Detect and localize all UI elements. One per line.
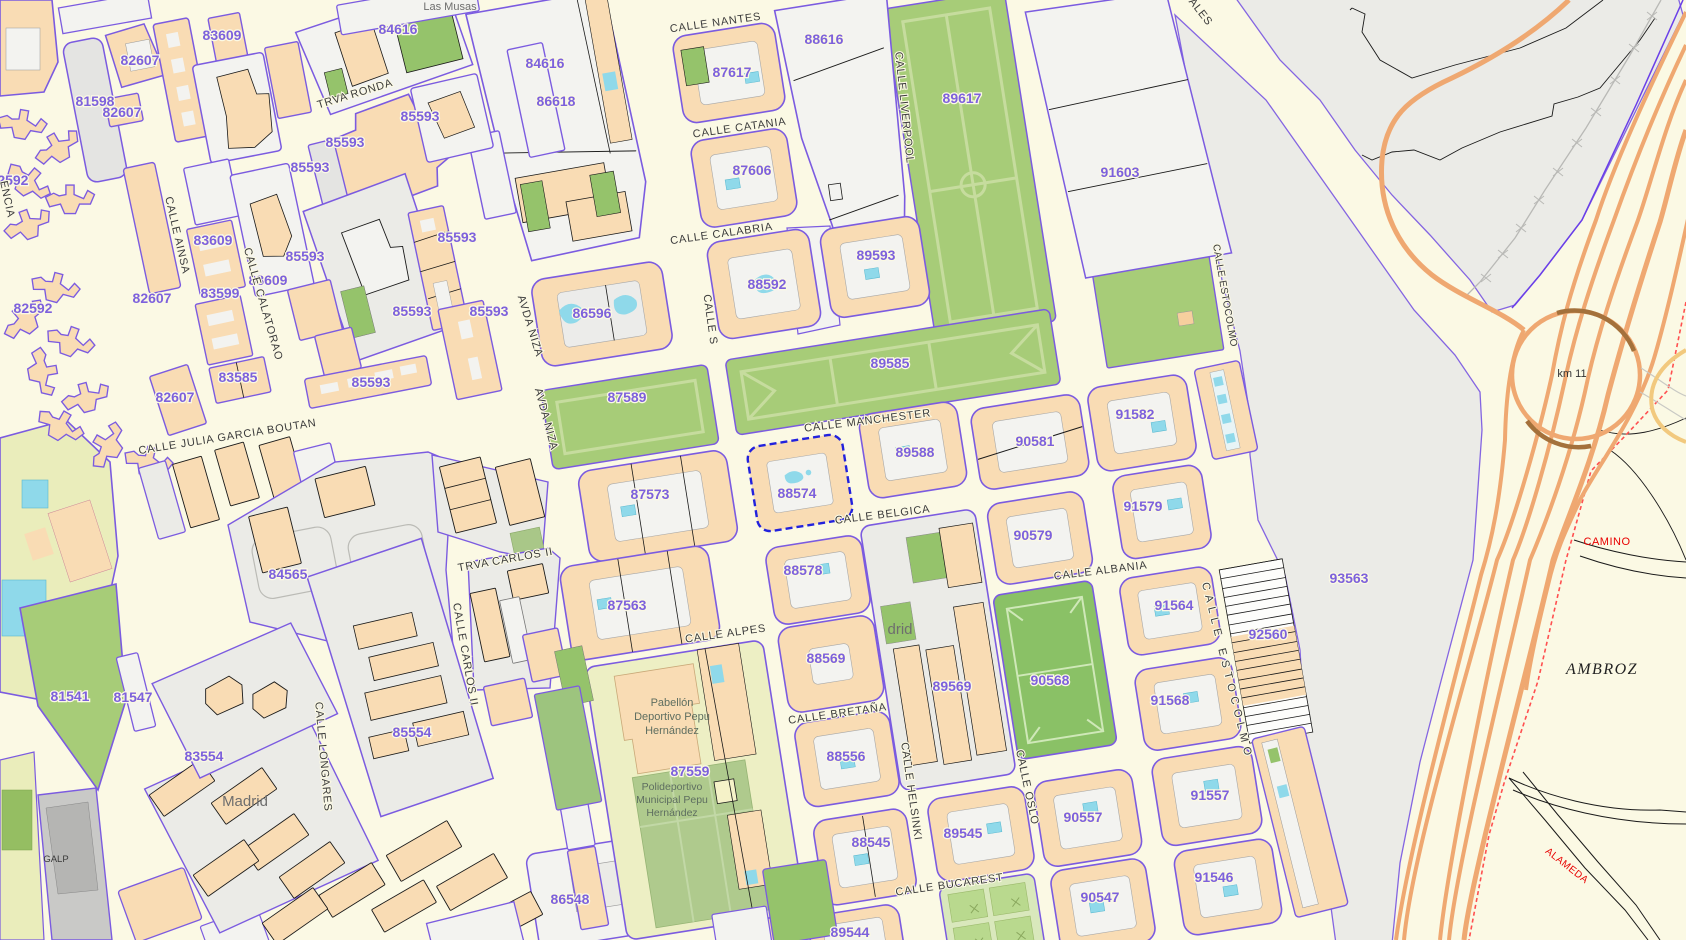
svg-text:90579: 90579: [1014, 527, 1053, 543]
svg-text:85593: 85593: [286, 248, 325, 264]
svg-text:88545: 88545: [852, 834, 891, 850]
svg-text:82592: 82592: [14, 300, 53, 316]
svg-text:Municipal Pepu: Municipal Pepu: [636, 794, 708, 806]
svg-text:Las Musas: Las Musas: [423, 1, 477, 13]
svg-text:88556: 88556: [827, 748, 866, 764]
svg-text:83609: 83609: [203, 27, 242, 43]
svg-text:87589: 87589: [608, 389, 647, 405]
svg-text:89588: 89588: [896, 444, 935, 460]
svg-text:90557: 90557: [1064, 809, 1103, 825]
svg-text:91603: 91603: [1101, 164, 1140, 180]
svg-text:88574: 88574: [778, 485, 817, 501]
svg-text:90581: 90581: [1016, 433, 1055, 449]
svg-text:82607: 82607: [103, 104, 142, 120]
svg-text:89585: 89585: [871, 355, 910, 371]
svg-text:87573: 87573: [631, 486, 670, 502]
svg-text:91557: 91557: [1191, 787, 1230, 803]
svg-text:CAMINO: CAMINO: [1584, 536, 1631, 548]
svg-text:drid: drid: [887, 621, 912, 638]
svg-text:81547: 81547: [114, 689, 153, 705]
svg-text:89545: 89545: [944, 825, 983, 841]
svg-text:87606: 87606: [733, 162, 772, 178]
svg-text:84616: 84616: [379, 21, 418, 37]
svg-text:87563: 87563: [608, 597, 647, 613]
svg-text:85593: 85593: [393, 303, 432, 319]
svg-text:88592: 88592: [748, 276, 787, 292]
svg-text:93563: 93563: [1330, 570, 1369, 586]
svg-text:85593: 85593: [401, 108, 440, 124]
svg-text:86596: 86596: [573, 305, 612, 321]
svg-text:91582: 91582: [1116, 406, 1155, 422]
svg-text:83585: 83585: [219, 369, 258, 385]
svg-text:91564: 91564: [1155, 597, 1194, 613]
svg-text:88616: 88616: [805, 31, 844, 47]
svg-text:85554: 85554: [393, 724, 432, 740]
svg-text:89617: 89617: [943, 90, 982, 106]
svg-text:Hernández: Hernández: [646, 807, 697, 819]
svg-text:83554: 83554: [185, 748, 224, 764]
svg-text:92560: 92560: [1249, 626, 1288, 642]
svg-text:84616: 84616: [526, 55, 565, 71]
svg-text:82607: 82607: [133, 290, 172, 306]
svg-text:84565: 84565: [269, 566, 308, 582]
svg-text:88578: 88578: [784, 562, 823, 578]
svg-text:87617: 87617: [713, 64, 752, 80]
svg-text:82607: 82607: [156, 389, 195, 405]
svg-text:86548: 86548: [551, 891, 590, 907]
svg-text:91546: 91546: [1195, 869, 1234, 885]
svg-text:90568: 90568: [1031, 672, 1070, 688]
svg-text:86618: 86618: [537, 93, 576, 109]
svg-text:Polideportivo: Polideportivo: [642, 781, 703, 793]
svg-text:85593: 85593: [352, 374, 391, 390]
svg-text:81541: 81541: [51, 688, 90, 704]
svg-text:85593: 85593: [438, 229, 477, 245]
svg-text:89593: 89593: [857, 247, 896, 263]
svg-text:Hernández: Hernández: [645, 725, 699, 737]
svg-text:82607: 82607: [121, 52, 160, 68]
svg-text:83609: 83609: [194, 232, 233, 248]
svg-text:88569: 88569: [807, 650, 846, 666]
svg-text:85593: 85593: [291, 159, 330, 175]
svg-text:91579: 91579: [1124, 498, 1163, 514]
svg-text:89569: 89569: [933, 678, 972, 694]
svg-text:91568: 91568: [1151, 692, 1190, 708]
svg-text:89544: 89544: [831, 924, 870, 940]
svg-text:km 11: km 11: [1557, 368, 1586, 380]
svg-text:Pabellón: Pabellón: [651, 697, 694, 709]
svg-text:85593: 85593: [470, 303, 509, 319]
svg-text:Deportivo Pepu: Deportivo Pepu: [634, 711, 710, 723]
svg-text:90547: 90547: [1081, 889, 1120, 905]
svg-text:85593: 85593: [326, 134, 365, 150]
svg-text:87559: 87559: [671, 763, 710, 779]
svg-text:AMBROZ: AMBROZ: [1565, 661, 1638, 678]
svg-text:83599: 83599: [201, 285, 240, 301]
svg-text:Madrid: Madrid: [222, 793, 268, 810]
svg-text:GALP: GALP: [43, 854, 68, 865]
